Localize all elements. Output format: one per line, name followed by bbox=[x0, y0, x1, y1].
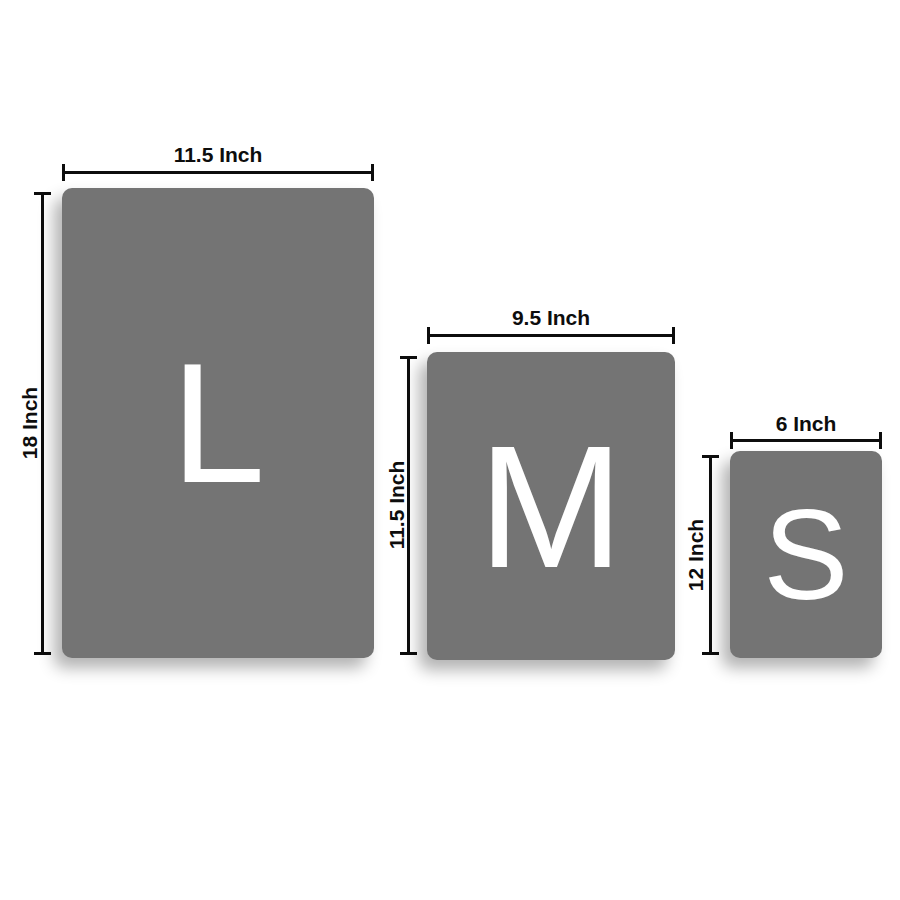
large-width-dimension-line bbox=[62, 171, 374, 174]
medium-width-label: 9.5 Inch bbox=[512, 307, 590, 328]
medium-size-letter: M bbox=[478, 419, 624, 594]
large-height-label: 18 Inch bbox=[19, 387, 40, 459]
small-height-dimension-line bbox=[709, 455, 712, 655]
large-size-panel: L bbox=[62, 188, 374, 658]
large-size-letter: L bbox=[171, 338, 266, 508]
medium-height-label: 11.5 Inch bbox=[386, 461, 407, 550]
small-width-dimension-line bbox=[730, 439, 882, 442]
small-width-label: 6 Inch bbox=[776, 413, 837, 434]
medium-size-panel: M bbox=[427, 352, 675, 660]
small-size-letter: S bbox=[763, 491, 848, 619]
small-size-panel: S bbox=[730, 451, 882, 658]
small-height-label: 12 Inch bbox=[685, 519, 706, 591]
medium-width-dimension-line bbox=[427, 334, 675, 337]
size-chart-canvas: 11.5 Inch 18 Inch L 9.5 Inch 11.5 Inch M… bbox=[0, 0, 900, 900]
medium-height-dimension-line bbox=[407, 356, 410, 655]
large-height-dimension-line bbox=[41, 192, 44, 655]
large-width-label: 11.5 Inch bbox=[174, 144, 263, 165]
